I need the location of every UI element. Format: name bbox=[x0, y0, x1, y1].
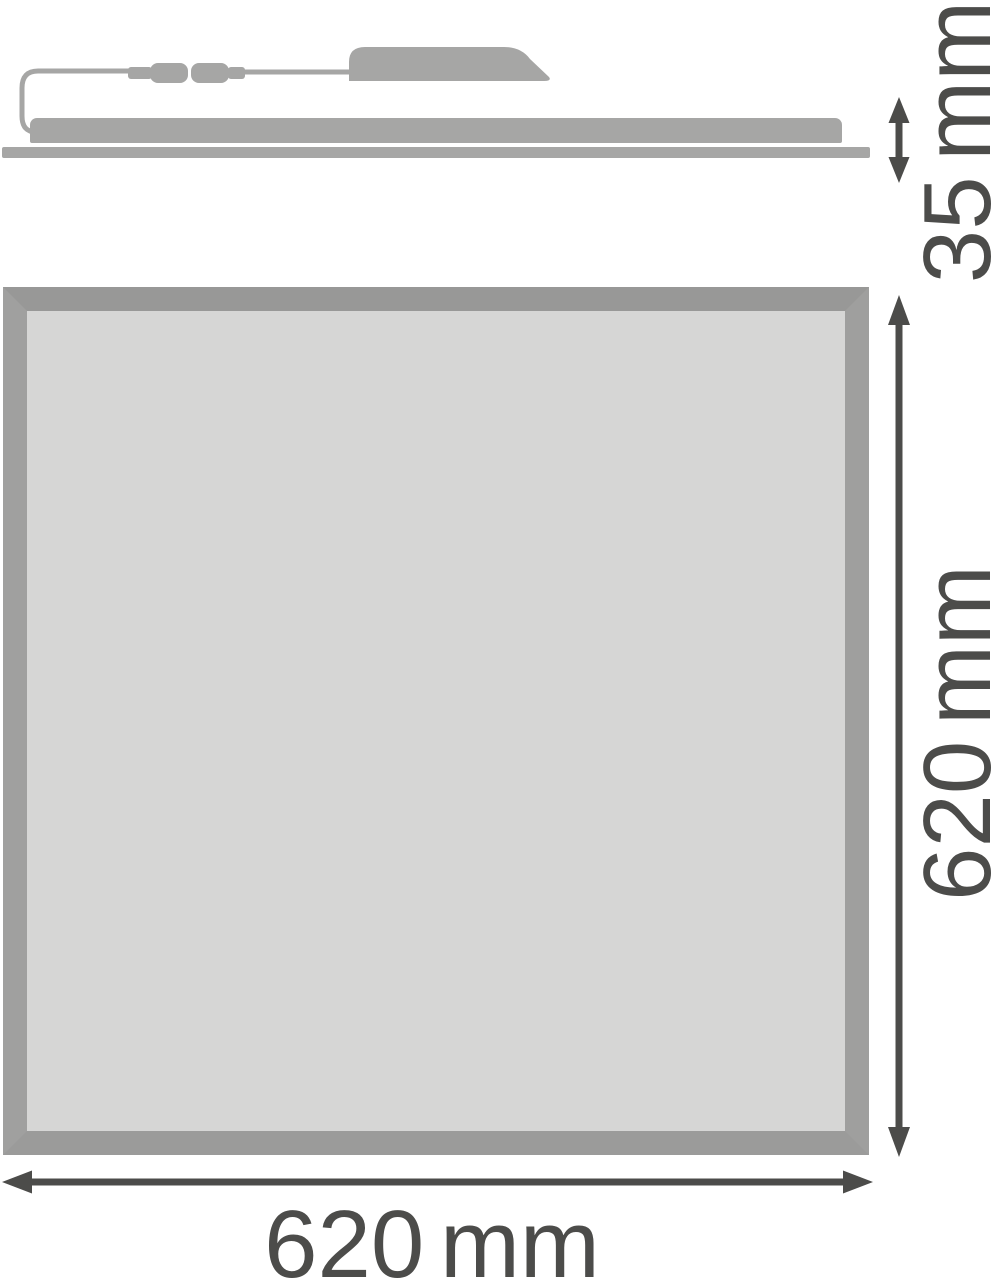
connector-socket-icon bbox=[191, 63, 229, 83]
panel-profile-slab bbox=[30, 118, 842, 143]
connector-ferrule-left-icon bbox=[128, 67, 152, 79]
connector-ferrule-right-icon bbox=[228, 67, 245, 79]
driver-box-icon bbox=[346, 47, 552, 81]
front-width-dimension-label: 620 mm bbox=[264, 1197, 600, 1284]
technical-drawing-canvas: 35 mm 620 mm 620 mm bbox=[0, 0, 1000, 1284]
connector-plug-icon bbox=[150, 63, 188, 83]
panel-face-strip bbox=[2, 147, 870, 158]
front-height-dimension-label: 620 mm bbox=[910, 565, 1000, 901]
panel-front-face bbox=[3, 287, 869, 1155]
side-height-dimension-label: 35 mm bbox=[910, 1, 1000, 283]
